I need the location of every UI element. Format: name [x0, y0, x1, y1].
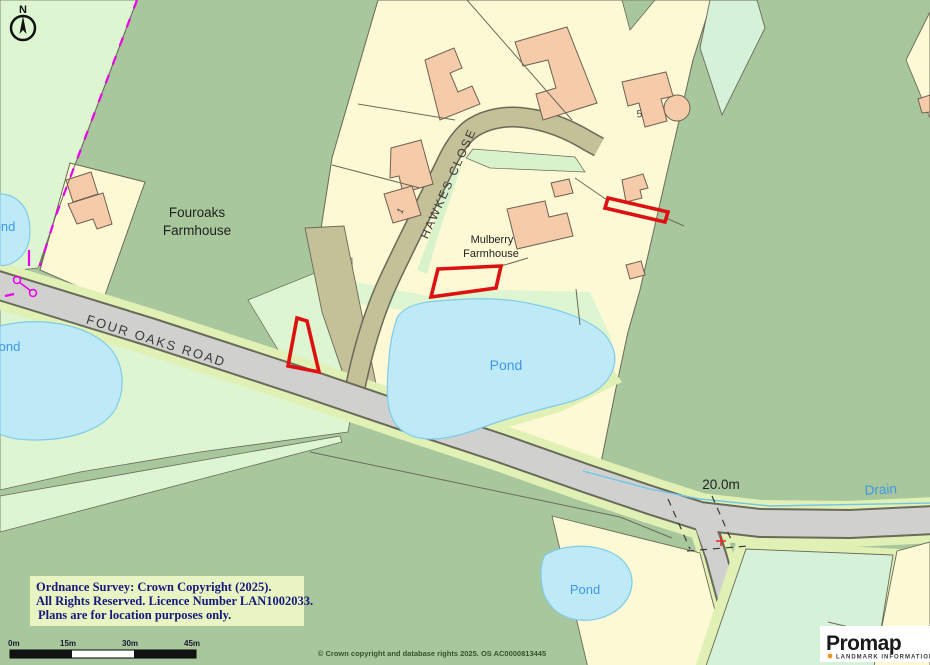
scale-tick-45: 45m [184, 639, 200, 648]
copyright-line2: All Rights Reserved. Licence Number LAN1… [36, 594, 313, 608]
fouroaks-label-line1: Fouroaks [169, 205, 226, 220]
pond-small-label: Pond [570, 582, 600, 597]
copyright-line3: Plans are for location purposes only. [38, 608, 231, 622]
map-screenshot: Fouroaks Farmhouse Mulberry Farmhouse HA… [0, 0, 930, 665]
os-attribution: © Crown copyright and database rights 20… [318, 649, 546, 658]
building-5-tower [664, 95, 690, 121]
landmark-dot-icon [828, 654, 833, 659]
pond-left-lower-label: Pond [0, 339, 20, 354]
scale-tick-30: 30m [122, 639, 138, 648]
compass-north-letter: N [19, 4, 27, 16]
promap-wordmark: Promap [826, 632, 901, 655]
copyright-line1: Ordnance Survey: Crown Copyright (2025). [36, 580, 272, 594]
copyright-box: Ordnance Survey: Crown Copyright (2025).… [30, 576, 313, 626]
spot-height-label: 20.0m [702, 477, 740, 492]
map-canvas: Fouroaks Farmhouse Mulberry Farmhouse HA… [0, 0, 930, 665]
scale-bar-segment-2 [134, 650, 196, 658]
pond-main-label: Pond [490, 357, 523, 373]
pond-left-upper-label: Pond [0, 219, 15, 234]
fouroaks-label-line2: Farmhouse [163, 223, 231, 238]
scale-bar-segment-1 [10, 650, 72, 658]
promap-logo: Promap LANDMARK INFORMATION [820, 626, 930, 662]
promap-tagline: LANDMARK INFORMATION [836, 655, 930, 661]
mulberry-label-line2: Farmhouse [463, 248, 519, 260]
scale-tick-15: 15m [60, 639, 76, 648]
scale-tick-0: 0m [8, 639, 20, 648]
mulberry-label-line1: Mulberry [471, 234, 514, 246]
drain-label: Drain [864, 481, 897, 498]
